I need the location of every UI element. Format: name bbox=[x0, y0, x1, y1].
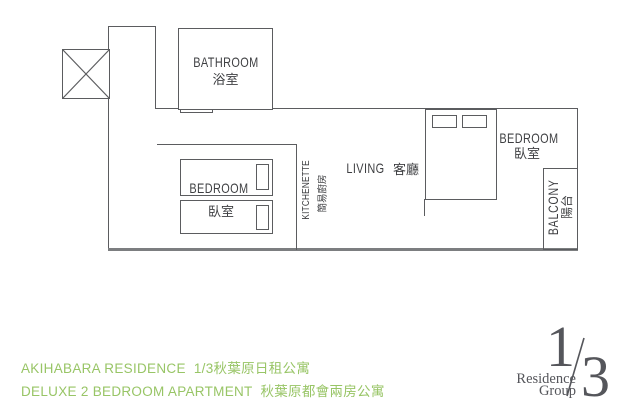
wall-bedroom2-right bbox=[296, 144, 297, 250]
logo-denominator: 3 bbox=[581, 348, 610, 400]
double-bed-pillow-left bbox=[432, 115, 457, 128]
balcony-label-zh: 陽台 bbox=[558, 195, 575, 219]
double-bed-pillow-right bbox=[462, 115, 487, 128]
kitchenette-label-zh-row: 簡易廚房 bbox=[316, 174, 327, 214]
wall-corridor-right bbox=[155, 26, 156, 109]
bedroom-small-label-en: BEDROOM bbox=[189, 180, 248, 196]
footer-title-line2: DELUXE 2 BEDROOM APARTMENT 秋葉原都會兩房公寓 bbox=[21, 380, 385, 400]
wall-stub-bed bbox=[424, 199, 425, 216]
shaft-box bbox=[62, 49, 110, 99]
bedroom-master-label-zh: 臥室 bbox=[514, 143, 540, 162]
kitchenette-label: KITCHENETTE bbox=[300, 155, 312, 225]
wall-partition-bedroom2 bbox=[157, 144, 297, 145]
balcony-label-zh-row: 陽台 bbox=[559, 192, 573, 222]
floorplan-page: BATHROOM 浴室 BEDROOM 臥室 KITCHENETTE 簡易廚房 … bbox=[0, 0, 640, 400]
wall-bottom bbox=[108, 248, 578, 251]
kitchenette-label-zh: 簡易廚房 bbox=[314, 175, 328, 213]
kitchenette-label-en: KITCHENETTE bbox=[300, 160, 312, 219]
logo-name-bottom: Group bbox=[480, 384, 576, 399]
bathroom-label-zh-row: 浴室 bbox=[178, 70, 273, 86]
wall-top bbox=[108, 26, 156, 27]
shaft-x-icon bbox=[63, 50, 109, 98]
living-label-zh: 客廳 bbox=[393, 159, 419, 178]
bedroom-small-label-zh-row: 臥室 bbox=[180, 203, 262, 218]
bathroom-door bbox=[180, 109, 213, 113]
bedroom-master-label-zh-row: 臥室 bbox=[497, 145, 557, 160]
bathroom-label-zh: 浴室 bbox=[212, 69, 238, 88]
bedroom-small-label: BEDROOM bbox=[180, 180, 258, 195]
living-label-en: LIVING bbox=[346, 160, 384, 176]
living-label: LIVING 客廳 bbox=[330, 160, 430, 176]
bedroom-small-label-zh: 臥室 bbox=[208, 201, 234, 220]
footer-title-line1: AKIHABARA RESIDENCE 1/3秋葉原日租公寓 bbox=[21, 357, 310, 377]
